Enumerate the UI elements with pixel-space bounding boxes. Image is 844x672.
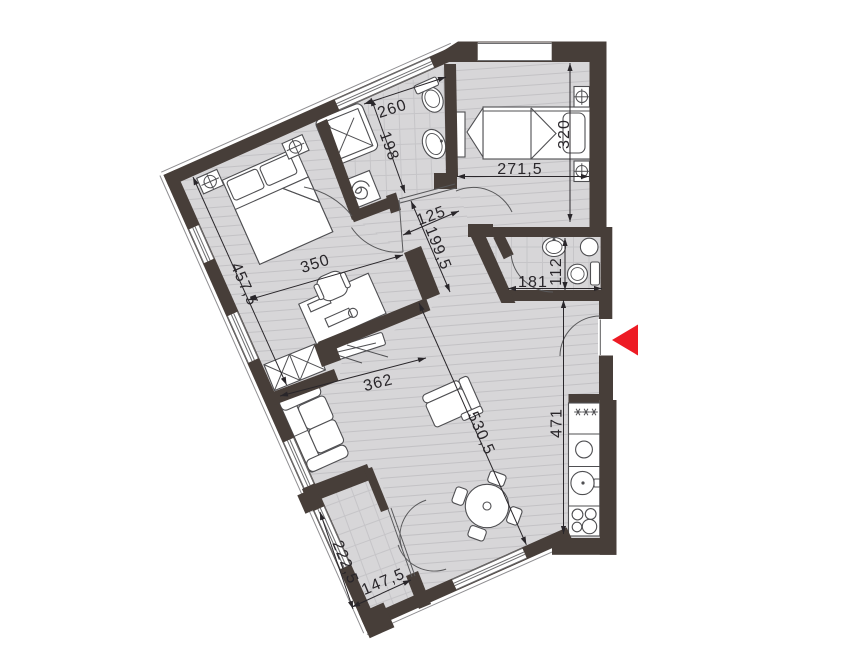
- svg-text:181: 181: [518, 274, 548, 291]
- svg-text:271,5: 271,5: [497, 161, 543, 178]
- svg-text:320: 320: [556, 119, 573, 149]
- svg-text:471: 471: [548, 408, 565, 438]
- svg-text:112: 112: [548, 257, 565, 286]
